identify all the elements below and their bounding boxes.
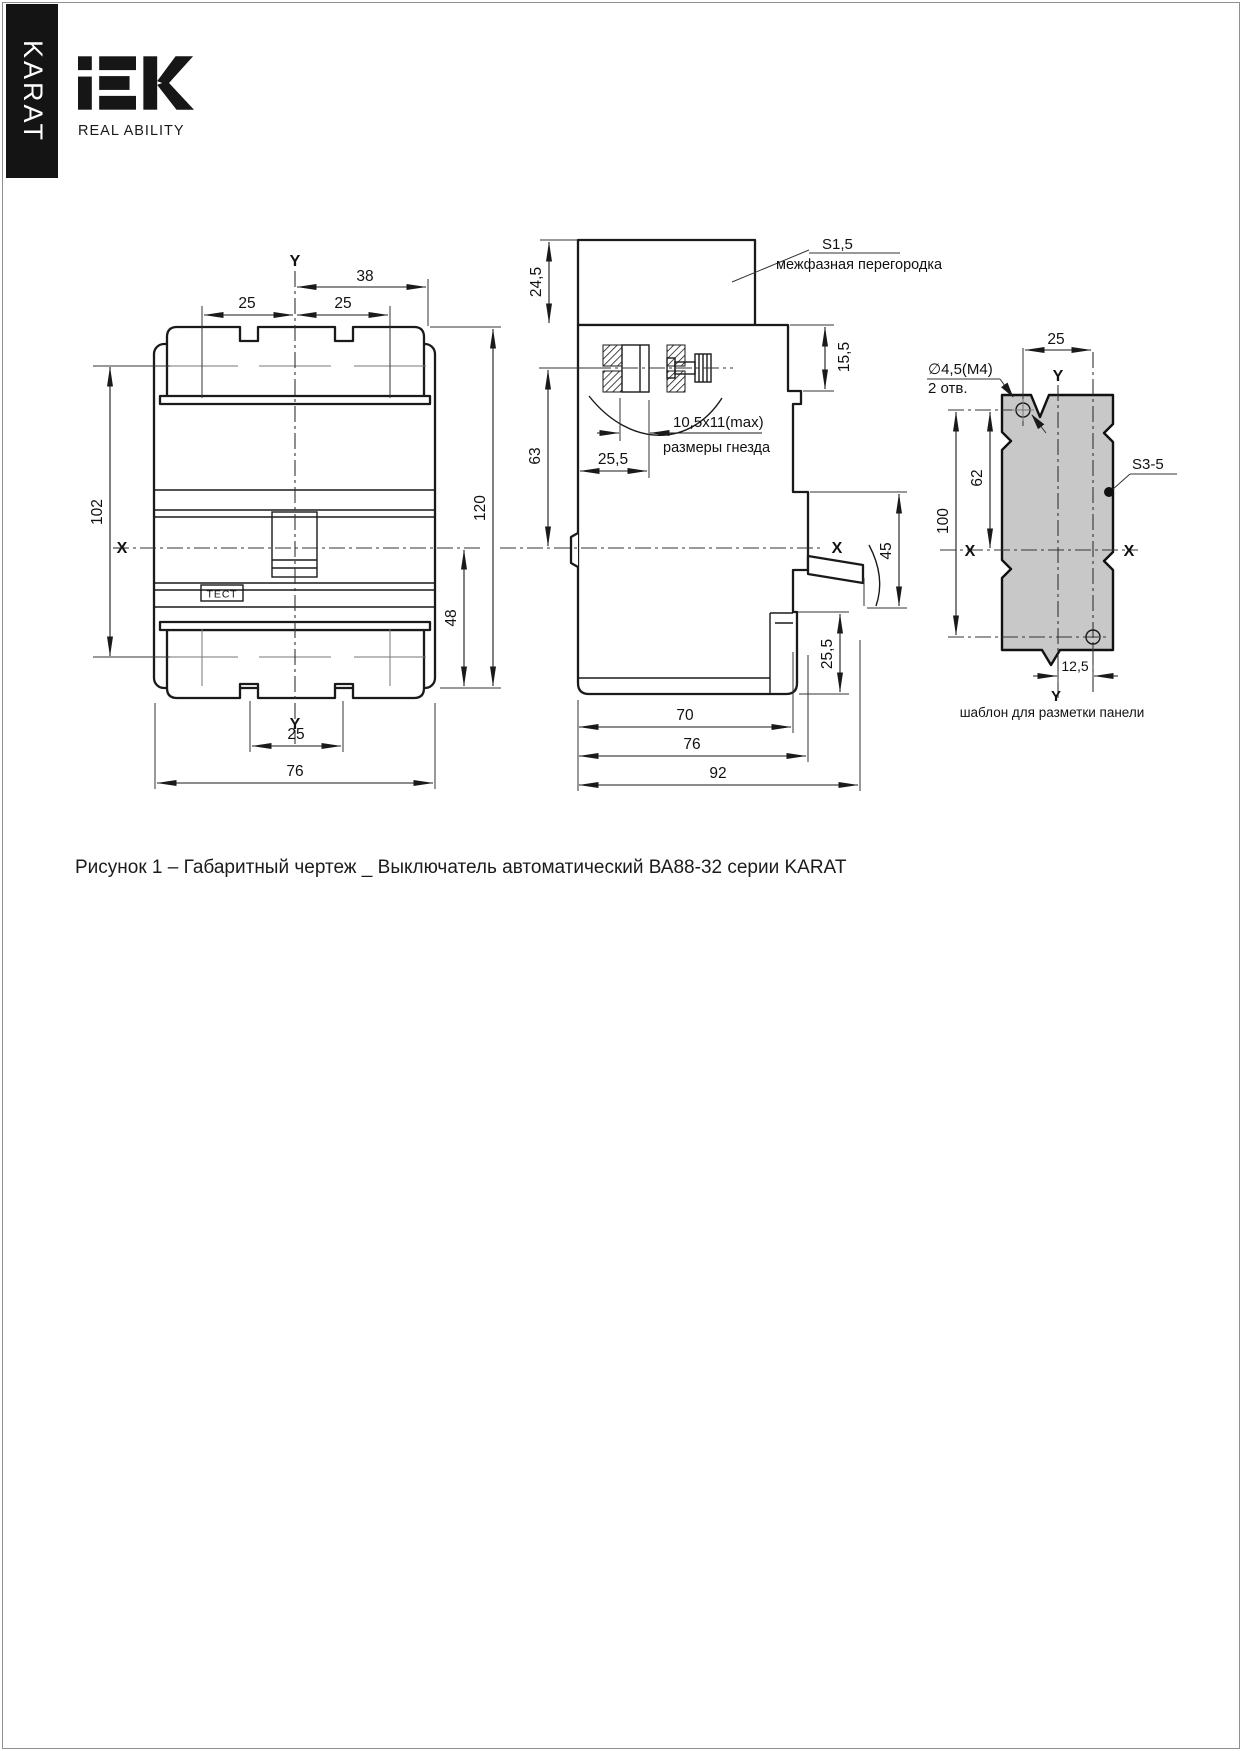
dim-92: 92 [709,765,726,782]
dim-25-template: 25 [1047,331,1064,348]
front-axis-y-bottom: Y [290,716,301,733]
dim-70: 70 [676,707,694,724]
dim-102: 102 [89,499,106,525]
dim-45: 45 [878,542,895,559]
panel-thickness-label: S3-5 [1132,456,1164,473]
dim-76-front: 76 [286,763,303,780]
template-axis-x-right: X [1124,543,1135,560]
test-button-label: ТЕСТ [206,589,237,601]
dim-25-right: 25 [334,295,351,312]
dim-38: 38 [356,268,373,285]
dim-62: 62 [969,469,986,486]
dim-100: 100 [935,508,952,534]
dim-120: 120 [472,495,489,521]
dim-63: 63 [527,447,544,464]
dim-24-5: 24,5 [528,267,545,297]
hole-count-label: 2 отв. [928,380,968,397]
template-caption: шаблон для разметки панели [960,705,1145,720]
template-axis-x-left: X [965,543,976,560]
template-axis-y-bottom: Y [1051,688,1061,705]
front-axis-y-top: Y [290,253,301,270]
dim-25-5-socket: 25,5 [598,451,628,468]
breaker-handle-side [808,556,863,583]
dim-25-5-step: 25,5 [819,639,836,669]
figure-caption: Рисунок 1 – Габаритный чертеж _ Выключат… [75,857,846,879]
dim-25-left: 25 [238,295,255,312]
panel-template-view: 25 ∅4,5(M4) 2 отв. 62 100 S3-5 12,5 [927,331,1177,720]
side-axis-x: X [832,540,843,557]
barrier-thickness-label: S1,5 [822,236,853,253]
template-axis-y-top: Y [1053,368,1064,385]
dim-48: 48 [443,609,460,626]
panel-thickness-dot [1104,487,1114,497]
front-axis-x: X [117,540,128,557]
side-view: 24,5 S1,5 межфазная перегородка 15,5 63 … [500,236,943,791]
hole-diameter-label: ∅4,5(M4) [928,361,993,378]
document-page: KARAT REAL ABILITY [0,0,1242,1751]
technical-drawing: ТЕСТ 102 [0,0,1242,820]
dim-76-side: 76 [683,736,700,753]
front-view: ТЕСТ 102 [89,253,501,789]
dim-12-5: 12,5 [1061,658,1088,674]
dim-15-5: 15,5 [836,342,853,372]
din-clip [571,533,578,567]
interphase-barrier [578,240,755,325]
socket-size-label: 10,5x11(max) [673,414,764,431]
socket-caption-label: размеры гнезда [663,440,771,456]
barrier-name-label: межфазная перегородка [776,257,943,273]
